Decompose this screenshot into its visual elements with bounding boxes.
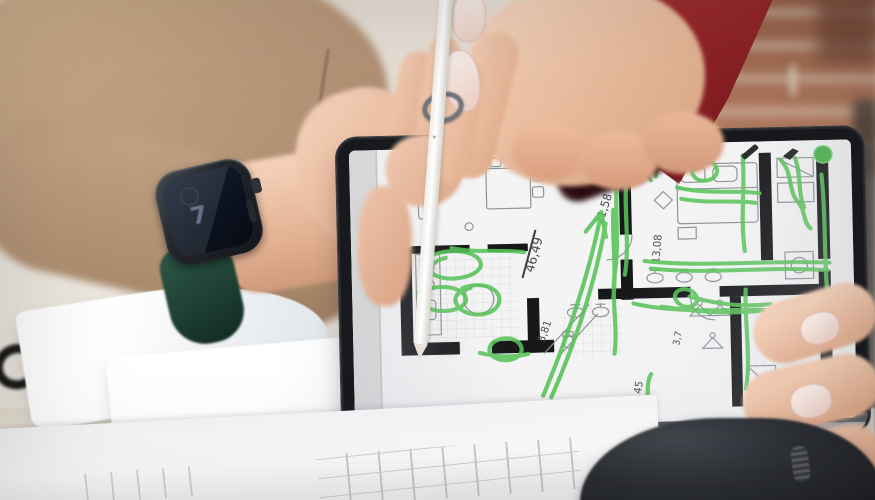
watch-screen: 7 xyxy=(160,163,256,259)
stylus-detail-dot xyxy=(433,135,436,138)
knuckle xyxy=(512,122,586,180)
person-left-fingertip xyxy=(358,186,412,306)
measurement-bedroom: 13,08 xyxy=(650,234,665,264)
stylus-tip xyxy=(413,344,428,360)
photo-scene: 7 xyxy=(0,0,875,500)
active-color-swatch xyxy=(814,146,832,164)
brick-shadow xyxy=(818,0,875,62)
knuckle xyxy=(642,112,724,174)
brick-mortar-line xyxy=(790,65,796,95)
